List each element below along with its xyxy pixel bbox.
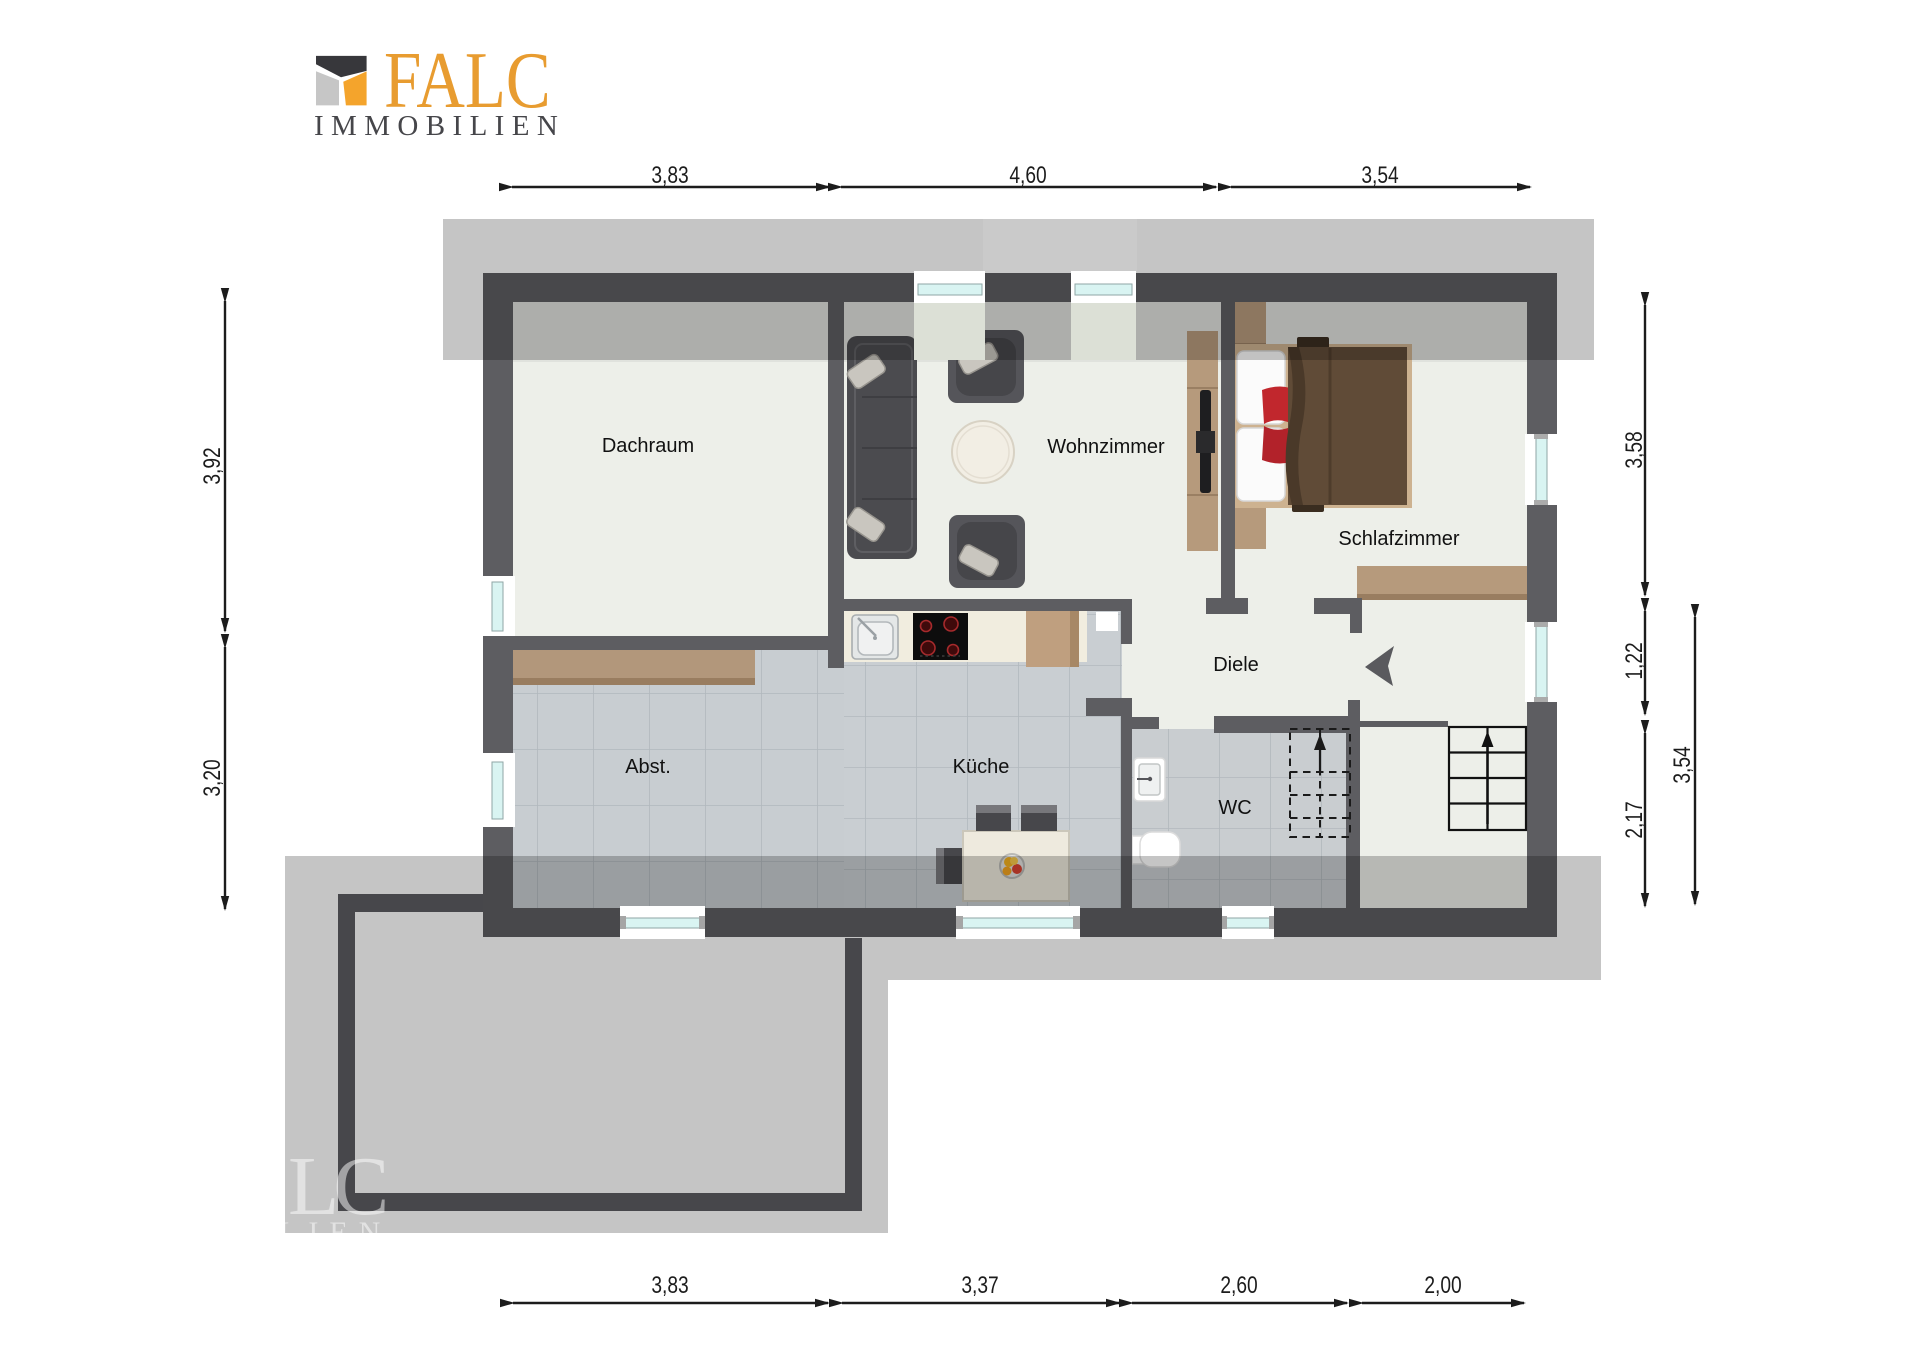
svg-text:2,00: 2,00	[1424, 1271, 1461, 1299]
svg-text:LIEN: LIEN	[279, 1216, 391, 1249]
svg-text:3,37: 3,37	[961, 1271, 998, 1299]
svg-text:3,54: 3,54	[1668, 746, 1696, 783]
svg-text:Dachraum: Dachraum	[602, 435, 694, 457]
svg-text:4,60: 4,60	[1009, 161, 1046, 189]
svg-text:IMMOBILIEN: IMMOBILIEN	[314, 110, 565, 142]
svg-text:Schlafzimmer: Schlafzimmer	[1338, 528, 1459, 550]
svg-text:Küche: Küche	[953, 756, 1010, 778]
svg-text:3,54: 3,54	[1361, 161, 1398, 189]
svg-text:Abst.: Abst.	[625, 756, 671, 778]
svg-text:3,20: 3,20	[198, 759, 226, 796]
svg-text:2,60: 2,60	[1220, 1271, 1257, 1299]
svg-text:WC: WC	[1218, 797, 1251, 819]
svg-text:Diele: Diele	[1213, 654, 1259, 676]
svg-text:3,58: 3,58	[1620, 431, 1648, 468]
svg-text:3,83: 3,83	[651, 161, 688, 189]
svg-text:3,92: 3,92	[198, 447, 226, 484]
svg-text:3,83: 3,83	[651, 1271, 688, 1299]
svg-text:Wohnzimmer: Wohnzimmer	[1047, 436, 1165, 458]
svg-text:2,17: 2,17	[1620, 801, 1648, 838]
svg-text:1,22: 1,22	[1620, 642, 1648, 679]
